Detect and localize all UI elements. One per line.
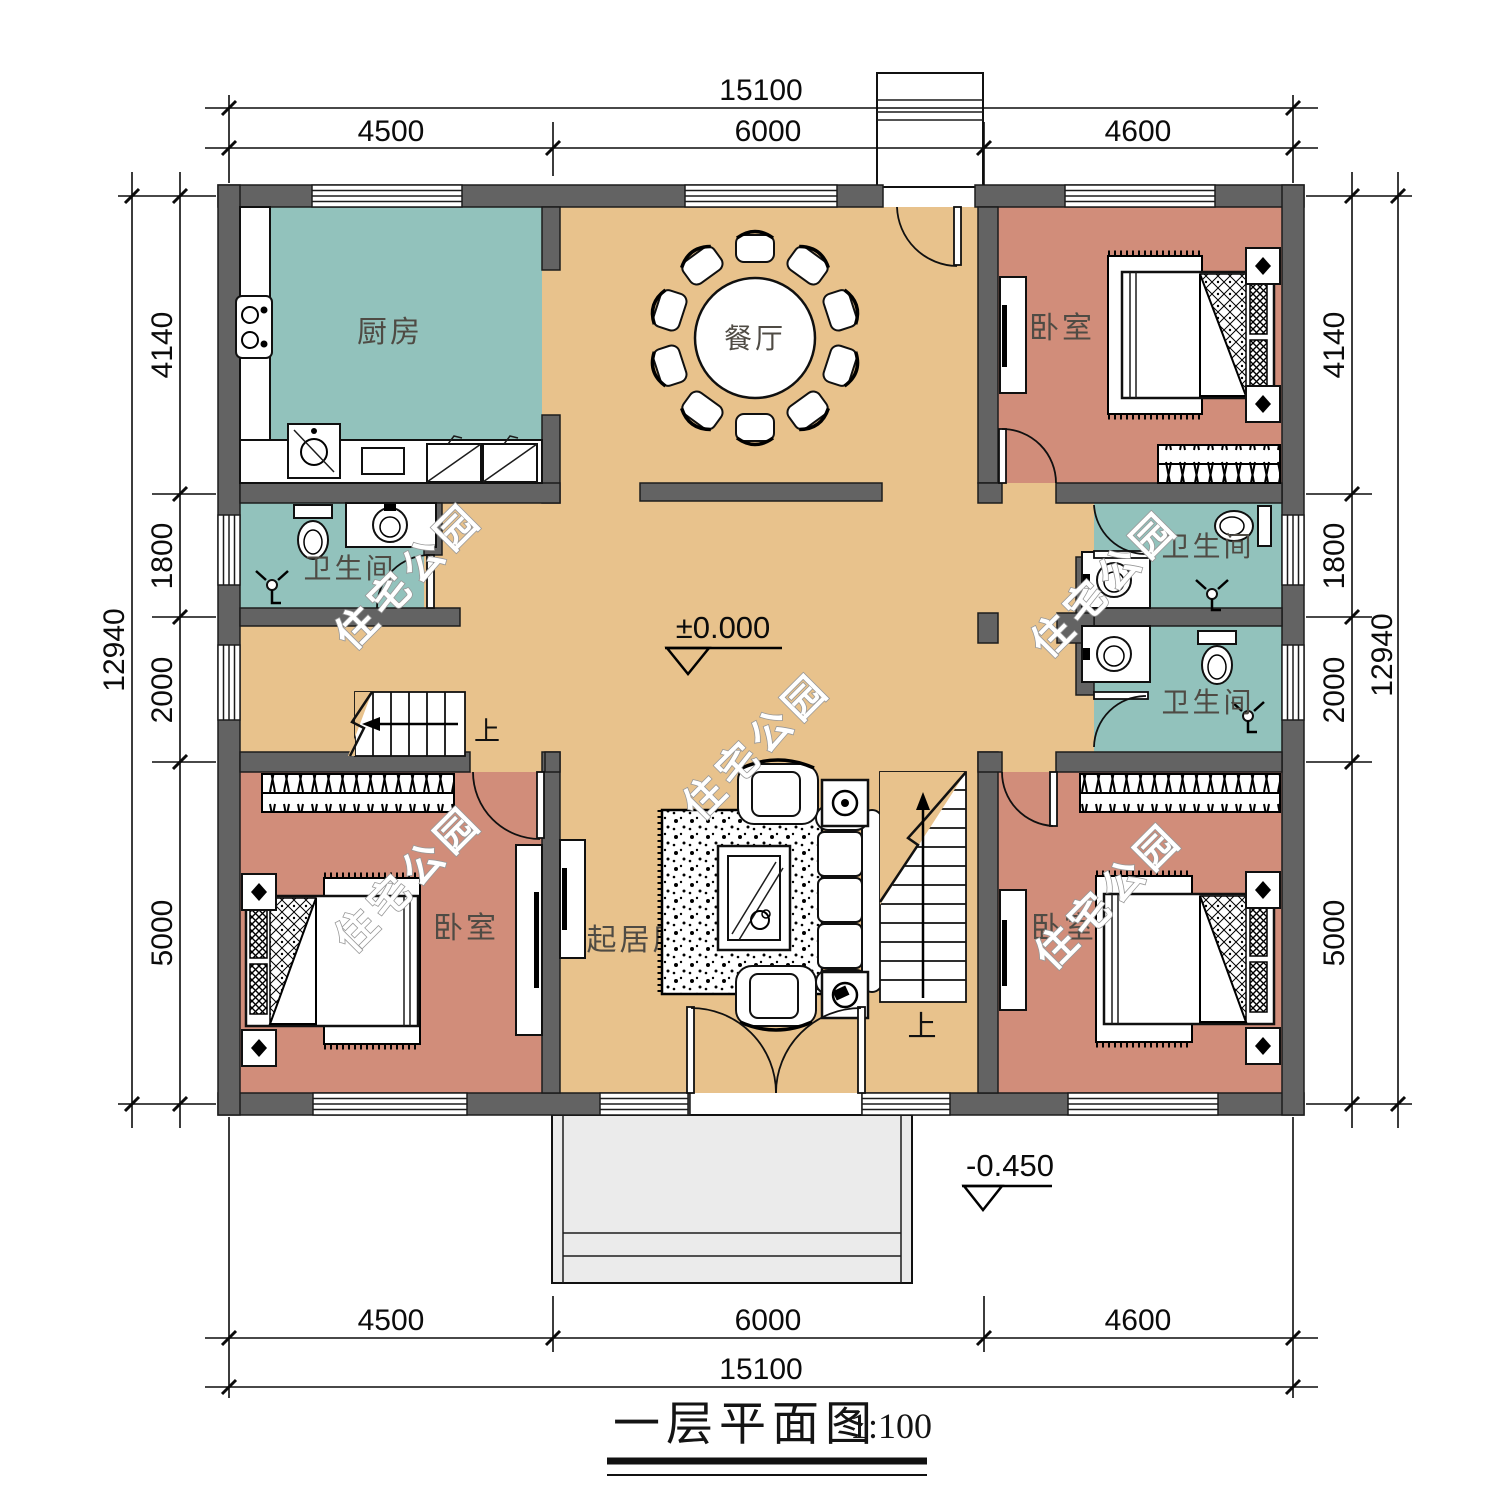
tv-cabinet-living	[560, 840, 585, 958]
dim-total-width-bottom: 15100	[719, 1353, 802, 1386]
bed	[1104, 894, 1274, 1024]
kitchen-label: 厨房	[357, 315, 423, 350]
side-table-top	[822, 780, 868, 826]
bathroom-upper-right-window	[1282, 515, 1304, 585]
small-stair-up-label: 上	[474, 717, 500, 747]
floor-plan-sheet: 厨房 餐厅	[0, 0, 1500, 1494]
bedroom-topright-window	[1065, 185, 1215, 207]
dim-top-1: 6000	[735, 115, 802, 148]
tv-cabinet	[1000, 890, 1026, 1010]
dim-top-2: 4600	[1105, 115, 1172, 148]
drawing-title: 一层平面图 1:100	[607, 1397, 932, 1475]
dimensions-left: 4140 1800 2000 5000 12940	[98, 172, 216, 1128]
bathroom-lower-right-window	[1282, 645, 1304, 720]
nightstand	[1246, 1028, 1280, 1064]
bathroom-left-window	[218, 515, 240, 585]
dim-total-width-top: 15100	[719, 74, 802, 107]
sofa	[816, 806, 882, 994]
kitchen-window	[312, 185, 462, 207]
title-scale: 1:100	[850, 1406, 932, 1446]
bedroom-topright-label: 卧室	[1029, 311, 1095, 346]
toilet	[294, 505, 332, 559]
dim-bottom-0: 4500	[358, 1304, 425, 1337]
nightstand	[1246, 872, 1280, 908]
coffee-table	[718, 846, 790, 950]
nightstand	[242, 874, 276, 910]
hall-left-window	[218, 645, 240, 720]
tv-cabinet	[516, 845, 542, 1035]
cooktop	[236, 296, 272, 358]
dim-total-height-left: 12940	[98, 608, 131, 691]
tv-cabinet	[1000, 277, 1026, 393]
dim-top-0: 4500	[358, 115, 425, 148]
wardrobe	[1158, 445, 1280, 483]
bathroom-lower-right-label: 卫生间	[1161, 686, 1254, 719]
nightstand	[1246, 386, 1280, 422]
bedroom-bottomleft-window	[313, 1093, 467, 1115]
dining-label: 餐厅	[724, 322, 786, 355]
dim-left-0: 4140	[146, 312, 179, 379]
dim-bottom-1: 6000	[735, 1304, 802, 1337]
bedroom-bottomleft-label: 卧室	[433, 911, 499, 946]
dim-right-2: 2000	[1318, 657, 1351, 724]
front-porch	[552, 1115, 912, 1283]
stair-up-label: 上	[907, 1009, 936, 1043]
kitchen-sink-unit	[288, 424, 340, 478]
nightstand	[1246, 248, 1280, 284]
dimensions-top: 15100 4500 6000 4600	[205, 74, 1318, 185]
wardrobe	[262, 774, 454, 812]
kitchen-appliance	[362, 448, 404, 474]
dining-window	[685, 185, 837, 207]
back-stoop	[877, 73, 983, 187]
level-floor-value: ±0.000	[676, 610, 771, 645]
dim-left-2: 2000	[146, 657, 179, 724]
dim-right-1: 1800	[1318, 523, 1351, 590]
dim-bottom-2: 4600	[1105, 1304, 1172, 1337]
level-marker-porch: -0.450	[962, 1148, 1054, 1210]
dim-right-3: 5000	[1318, 900, 1351, 967]
dim-left-3: 5000	[146, 900, 179, 967]
bedroom-bottomright-window	[1068, 1093, 1218, 1115]
wardrobe	[1080, 774, 1280, 812]
armchair-bottom	[736, 966, 816, 1030]
entry-sidelight-left	[600, 1093, 688, 1115]
vanity-sink	[1082, 626, 1150, 682]
dim-left-1: 1800	[146, 523, 179, 590]
title-text: 一层平面图	[613, 1397, 878, 1452]
dimensions-right: 4140 1800 2000 5000 12940	[1306, 172, 1412, 1128]
dim-total-height-right: 12940	[1366, 613, 1399, 696]
floor-plan-drawing: 厨房 餐厅	[0, 0, 1500, 1494]
main-staircase: 上	[880, 772, 966, 1043]
entry-sidelight-right	[862, 1093, 950, 1115]
bed	[1122, 272, 1274, 398]
dim-right-0: 4140	[1318, 312, 1351, 379]
nightstand	[242, 1030, 276, 1066]
toilet	[1198, 631, 1236, 684]
level-porch-value: -0.450	[966, 1148, 1054, 1183]
